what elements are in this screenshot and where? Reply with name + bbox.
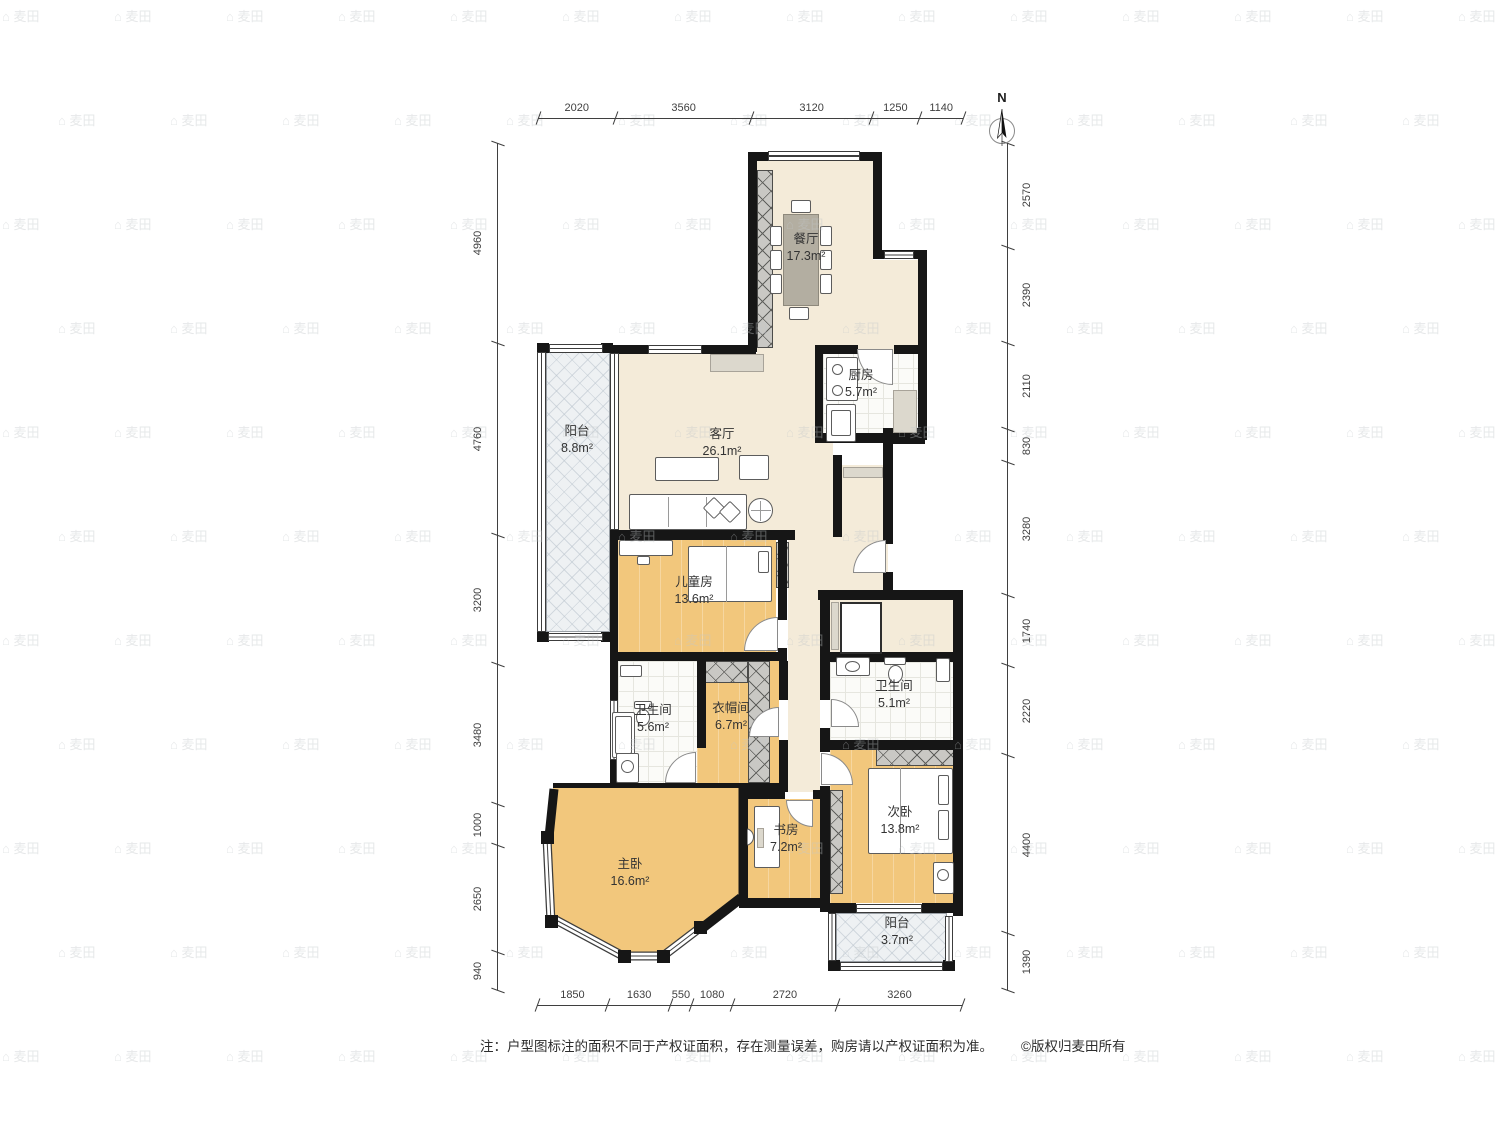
watermark: ⌂ 麦田 — [338, 6, 375, 25]
watermark: ⌂ 麦田 — [842, 526, 879, 545]
dim-label: 4760 — [472, 427, 484, 451]
watermark: ⌂ 麦田 — [394, 942, 431, 961]
dim-tick — [491, 842, 504, 848]
watermark: ⌂ 麦田 — [170, 734, 207, 753]
label-balcony-top: 阳台8.8m² — [561, 423, 593, 457]
watermark: ⌂ 麦田 — [1290, 110, 1327, 129]
dimension-line-bottom: 18501630550108027203260 — [537, 986, 962, 1012]
north-compass: N — [984, 90, 1020, 151]
watermark: ⌂ 麦田 — [954, 734, 991, 753]
room-name: 次卧 — [887, 805, 912, 819]
compass-icon — [984, 105, 1020, 151]
watermark: ⌂ 麦田 — [282, 942, 319, 961]
watermark: ⌂ 麦田 — [1234, 838, 1271, 857]
watermark: ⌂ 麦田 — [58, 942, 95, 961]
watermark: ⌂ 麦田 — [786, 422, 823, 441]
watermark: ⌂ 麦田 — [1458, 422, 1495, 441]
dim-label: 3480 — [472, 722, 484, 746]
watermark: ⌂ 麦田 — [1122, 214, 1159, 233]
watermark: ⌂ 麦田 — [954, 942, 991, 961]
dimension-line-right: 25702390211083032801740222044001390 — [1006, 143, 1036, 990]
room-name: 客厅 — [709, 427, 734, 441]
watermark: ⌂ 麦田 — [450, 6, 487, 25]
watermark: ⌂ 麦田 — [1122, 422, 1159, 441]
watermark: ⌂ 麦田 — [1066, 318, 1103, 337]
label-kitchen: 厨房5.7m² — [845, 367, 877, 401]
watermark: ⌂ 麦田 — [282, 526, 319, 545]
watermark: ⌂ 麦田 — [898, 214, 935, 233]
room-name: 衣帽间 — [712, 701, 750, 715]
watermark: ⌂ 麦田 — [2, 630, 39, 649]
watermark: ⌂ 麦田 — [226, 214, 263, 233]
watermark: ⌂ 麦田 — [898, 6, 935, 25]
dim-label: 3280 — [1021, 517, 1033, 541]
watermark: ⌂ 麦田 — [1178, 110, 1215, 129]
label-living: 客厅26.1m² — [703, 426, 742, 460]
room-name: 阳台 — [884, 916, 909, 930]
label-bath-a: 卫生间5.6m² — [634, 702, 672, 736]
dim-tick — [1001, 341, 1014, 347]
room-area: 5.1m² — [878, 696, 910, 710]
watermark: ⌂ 麦田 — [1458, 6, 1495, 25]
watermark: ⌂ 麦田 — [1402, 318, 1439, 337]
room-area: 7.2m² — [770, 840, 802, 854]
dim-label: 940 — [472, 962, 484, 980]
watermark: ⌂ 麦田 — [1346, 422, 1383, 441]
room-name: 书房 — [773, 823, 798, 837]
watermark: ⌂ 麦田 — [282, 734, 319, 753]
dim-tick — [1001, 663, 1014, 669]
watermark: ⌂ 麦田 — [506, 318, 543, 337]
dim-label: 4400 — [1021, 832, 1033, 856]
watermark: ⌂ 麦田 — [1346, 630, 1383, 649]
dimension-line-left: 496047603200348010002650940 — [468, 143, 498, 990]
dim-tick — [491, 661, 504, 667]
dim-label: 2110 — [1021, 375, 1033, 399]
watermark: ⌂ 麦田 — [1122, 6, 1159, 25]
watermark: ⌂ 麦田 — [1010, 6, 1047, 25]
watermark: ⌂ 麦田 — [170, 942, 207, 961]
watermark: ⌂ 麦田 — [730, 526, 767, 545]
room-name: 卫生间 — [634, 703, 672, 717]
dim-tick — [1001, 460, 1014, 466]
room-name: 儿童房 — [675, 575, 713, 589]
watermark: ⌂ 麦田 — [226, 6, 263, 25]
watermark: ⌂ 麦田 — [394, 318, 431, 337]
label-dining: 餐厅17.3m² — [787, 231, 826, 265]
watermark: ⌂ 麦田 — [618, 318, 655, 337]
watermark: ⌂ 麦田 — [1122, 630, 1159, 649]
disclaimer-text: 注：户型图标注的面积不同于产权证面积，存在测量误差，购房请以产权证面积为准。 — [480, 1039, 993, 1054]
dim-label: 2720 — [773, 989, 797, 1001]
dim-line — [497, 143, 498, 990]
dim-label: 3260 — [887, 989, 911, 1001]
room-name: 卫生间 — [875, 679, 913, 693]
watermark: ⌂ 麦田 — [1066, 942, 1103, 961]
watermark: ⌂ 麦田 — [1402, 526, 1439, 545]
dim-tick — [491, 140, 504, 146]
dim-label: 2570 — [1021, 183, 1033, 207]
dim-tick — [1001, 931, 1014, 937]
watermark: ⌂ 麦田 — [114, 422, 151, 441]
watermark: ⌂ 麦田 — [394, 734, 431, 753]
watermark: ⌂ 麦田 — [226, 838, 263, 857]
watermark: ⌂ 麦田 — [394, 526, 431, 545]
dim-line — [537, 1005, 962, 1006]
watermark: ⌂ 麦田 — [730, 318, 767, 337]
room-name: 餐厅 — [793, 232, 818, 246]
watermark: ⌂ 麦田 — [1346, 6, 1383, 25]
watermark: ⌂ 麦田 — [338, 422, 375, 441]
watermark: ⌂ 麦田 — [674, 630, 711, 649]
watermark: ⌂ 麦田 — [114, 838, 151, 857]
watermark: ⌂ 麦田 — [114, 6, 151, 25]
dim-label: 4960 — [472, 231, 484, 255]
watermark: ⌂ 麦田 — [1290, 526, 1327, 545]
watermark: ⌂ 麦田 — [842, 318, 879, 337]
watermark: ⌂ 麦田 — [1178, 942, 1215, 961]
dim-label: 1140 — [929, 102, 953, 114]
room-area: 26.1m² — [703, 444, 742, 458]
dim-tick — [1001, 753, 1014, 759]
watermark: ⌂ 麦田 — [394, 110, 431, 129]
dim-tick — [491, 987, 504, 993]
watermark: ⌂ 麦田 — [1234, 422, 1271, 441]
dim-label: 3120 — [799, 102, 823, 114]
watermark: ⌂ 麦田 — [842, 942, 879, 961]
watermark: ⌂ 麦田 — [1234, 214, 1271, 233]
watermark: ⌂ 麦田 — [954, 318, 991, 337]
dim-label: 2020 — [564, 102, 588, 114]
room-name: 厨房 — [848, 368, 873, 382]
watermark: ⌂ 麦田 — [1234, 1046, 1271, 1065]
dim-tick — [491, 802, 504, 808]
watermark: ⌂ 麦田 — [842, 734, 879, 753]
room-area: 3.7m² — [881, 933, 913, 947]
room-area: 13.8m² — [881, 822, 920, 836]
dim-tick — [1001, 426, 1014, 432]
room-area: 13.6m² — [675, 592, 714, 606]
watermark: ⌂ 麦田 — [1122, 1046, 1159, 1065]
dim-label: 1630 — [627, 989, 651, 1001]
watermark: ⌂ 麦田 — [1234, 6, 1271, 25]
watermark: ⌂ 麦田 — [226, 1046, 263, 1065]
watermark: ⌂ 麦田 — [2, 1046, 39, 1065]
watermark: ⌂ 麦田 — [674, 214, 711, 233]
dim-label: 2390 — [1021, 283, 1033, 307]
dim-label: 1740 — [1021, 618, 1033, 642]
watermark: ⌂ 麦田 — [170, 318, 207, 337]
footer-note: 注：户型图标注的面积不同于产权证面积，存在测量误差，购房请以产权证面积为准。©版… — [480, 1035, 1125, 1055]
watermark: ⌂ 麦田 — [898, 838, 935, 857]
room-name: 主卧 — [617, 857, 642, 871]
watermark: ⌂ 麦田 — [1458, 214, 1495, 233]
watermark: ⌂ 麦田 — [1290, 734, 1327, 753]
watermark: ⌂ 麦田 — [1066, 734, 1103, 753]
watermark: ⌂ 麦田 — [1290, 942, 1327, 961]
label-study: 书房7.2m² — [770, 822, 802, 856]
watermark: ⌂ 麦田 — [338, 630, 375, 649]
dim-line — [1007, 143, 1008, 990]
dim-tick — [491, 340, 504, 346]
watermark: ⌂ 麦田 — [562, 6, 599, 25]
watermark: ⌂ 麦田 — [1346, 838, 1383, 857]
watermark: ⌂ 麦田 — [1066, 110, 1103, 129]
watermark: ⌂ 麦田 — [1178, 318, 1215, 337]
watermark: ⌂ 麦田 — [506, 526, 543, 545]
watermark: ⌂ 麦田 — [730, 734, 767, 753]
dim-label: 830 — [1021, 437, 1033, 455]
watermark: ⌂ 麦田 — [338, 1046, 375, 1065]
watermark: ⌂ 麦田 — [898, 422, 935, 441]
dim-tick — [491, 532, 504, 538]
dim-label: 3560 — [671, 102, 695, 114]
room-area: 8.8m² — [561, 441, 593, 455]
watermark: ⌂ 麦田 — [2, 838, 39, 857]
watermark: ⌂ 麦田 — [114, 214, 151, 233]
copyright-text: ©版权归麦田所有 — [1021, 1039, 1125, 1054]
watermark: ⌂ 麦田 — [226, 630, 263, 649]
watermark: ⌂ 麦田 — [58, 526, 95, 545]
label-master: 主卧16.6m² — [611, 856, 650, 890]
room-area: 6.7m² — [715, 718, 747, 732]
watermark: ⌂ 麦田 — [1402, 734, 1439, 753]
watermark: ⌂ 麦田 — [898, 630, 935, 649]
dim-tick — [1001, 987, 1014, 993]
watermark: ⌂ 麦田 — [1178, 734, 1215, 753]
watermark: ⌂ 麦田 — [114, 1046, 151, 1065]
dim-label: 2650 — [472, 886, 484, 910]
watermark: ⌂ 麦田 — [1178, 526, 1215, 545]
watermark: ⌂ 麦田 — [1402, 942, 1439, 961]
watermark: ⌂ 麦田 — [2, 214, 39, 233]
watermark: ⌂ 麦田 — [1122, 838, 1159, 857]
label-balcony-bottom: 阳台3.7m² — [881, 915, 913, 949]
watermark: ⌂ 麦田 — [1402, 110, 1439, 129]
watermark: ⌂ 麦田 — [674, 6, 711, 25]
watermark: ⌂ 麦田 — [1290, 318, 1327, 337]
watermark: ⌂ 麦田 — [58, 318, 95, 337]
watermark: ⌂ 麦田 — [2, 6, 39, 25]
dim-label: 2220 — [1021, 699, 1033, 723]
watermark: ⌂ 麦田 — [282, 318, 319, 337]
watermark: ⌂ 麦田 — [282, 110, 319, 129]
watermark: ⌂ 麦田 — [338, 214, 375, 233]
room-area: 17.3m² — [787, 249, 826, 263]
watermark: ⌂ 麦田 — [338, 838, 375, 857]
watermark: ⌂ 麦田 — [114, 630, 151, 649]
watermark: ⌂ 麦田 — [954, 526, 991, 545]
label-bath-b: 卫生间5.1m² — [875, 678, 913, 712]
label-bedroom2: 次卧13.8m² — [881, 804, 920, 838]
floor-plan-page: ⌂ 麦田⌂ 麦田⌂ 麦田⌂ 麦田⌂ 麦田⌂ 麦田⌂ 麦田⌂ 麦田⌂ 麦田⌂ 麦田… — [0, 0, 1500, 1125]
dim-label: 1250 — [883, 102, 907, 114]
dim-label: 3200 — [472, 588, 484, 612]
dim-tick — [1001, 593, 1014, 599]
watermark: ⌂ 麦田 — [170, 110, 207, 129]
watermark: ⌂ 麦田 — [1346, 1046, 1383, 1065]
dim-label: 1000 — [472, 813, 484, 837]
watermark: ⌂ 麦田 — [506, 734, 543, 753]
watermark: ⌂ 麦田 — [1458, 838, 1495, 857]
dim-label: 1850 — [560, 989, 584, 1001]
watermark: ⌂ 麦田 — [58, 110, 95, 129]
dim-tick — [1001, 244, 1014, 250]
label-children: 儿童房13.6m² — [675, 574, 714, 608]
dim-tick — [491, 949, 504, 955]
north-label: N — [984, 90, 1020, 105]
watermark: ⌂ 麦田 — [562, 214, 599, 233]
room-area: 5.6m² — [637, 720, 669, 734]
room-area: 16.6m² — [611, 874, 650, 888]
dim-label: 1390 — [1021, 950, 1033, 974]
watermark: ⌂ 麦田 — [226, 422, 263, 441]
room-name: 阳台 — [564, 424, 589, 438]
label-cloakroom: 衣帽间6.7m² — [712, 700, 750, 734]
watermark: ⌂ 麦田 — [170, 526, 207, 545]
watermark: ⌂ 麦田 — [1066, 526, 1103, 545]
watermark: ⌂ 麦田 — [618, 734, 655, 753]
watermark: ⌂ 麦田 — [618, 526, 655, 545]
watermark: ⌂ 麦田 — [562, 630, 599, 649]
room-area: 5.7m² — [845, 385, 877, 399]
watermark: ⌂ 麦田 — [1346, 214, 1383, 233]
dimension-line-top: 20203560312012501140 — [538, 99, 963, 125]
watermark: ⌂ 麦田 — [1458, 1046, 1495, 1065]
watermark: ⌂ 麦田 — [1234, 630, 1271, 649]
watermark: ⌂ 麦田 — [1458, 630, 1495, 649]
dim-label: 550 — [672, 989, 690, 1001]
watermark: ⌂ 麦田 — [2, 422, 39, 441]
dim-label: 1080 — [700, 989, 724, 1001]
watermark: ⌂ 麦田 — [786, 6, 823, 25]
watermark: ⌂ 麦田 — [58, 734, 95, 753]
watermark: ⌂ 麦田 — [786, 630, 823, 649]
